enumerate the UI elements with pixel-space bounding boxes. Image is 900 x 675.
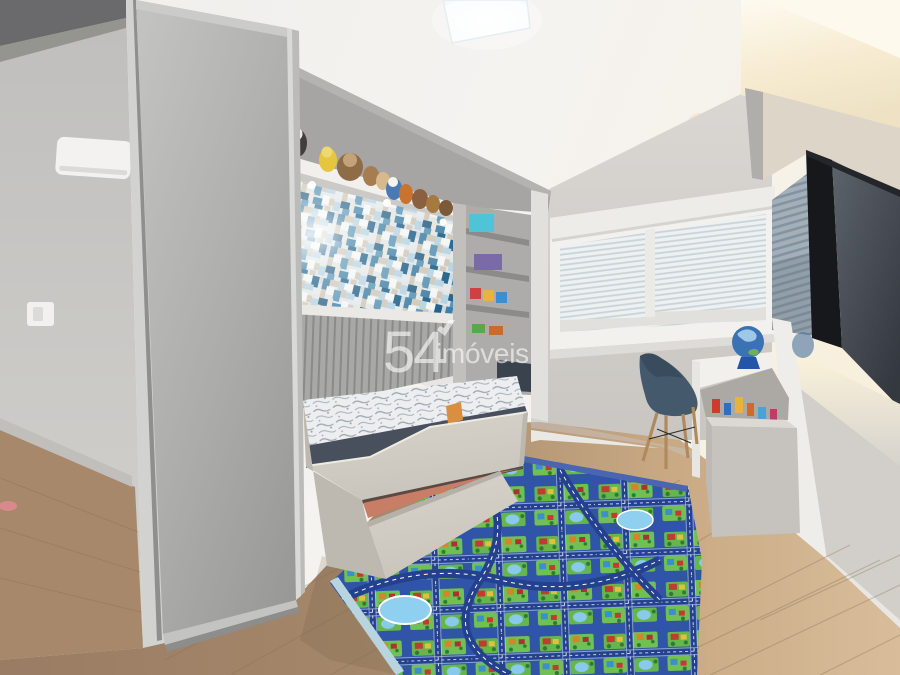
svg-text:imóveis: imóveis xyxy=(436,338,529,369)
